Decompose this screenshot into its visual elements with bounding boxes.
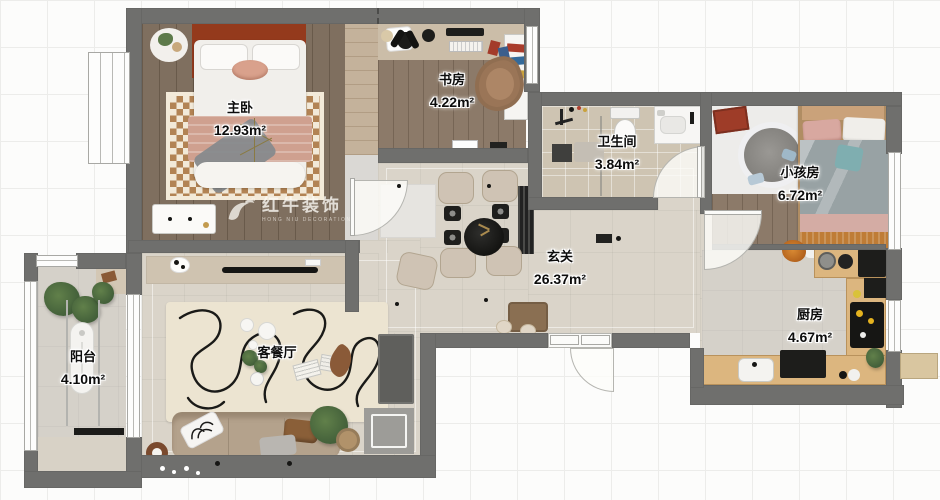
room-name: 书房 — [430, 70, 474, 91]
dining-stool — [444, 206, 461, 221]
entry-door-panel — [581, 335, 610, 345]
wall — [612, 333, 690, 348]
room-label-hallway: 玄关 26.37m² — [534, 247, 586, 290]
study-window — [526, 26, 538, 84]
balcony-window — [24, 281, 38, 451]
wall — [345, 240, 359, 312]
sink-faucet-icon — [752, 362, 757, 367]
brand-bull-icon — [226, 196, 256, 224]
entry-pouf — [496, 320, 512, 334]
master-dresser — [152, 204, 216, 234]
room-area: 3.84m² — [595, 153, 639, 175]
dining-chair — [440, 248, 476, 278]
shampoo-bottle — [583, 108, 587, 112]
wall — [528, 92, 902, 106]
room-area: 12.93m² — [214, 119, 266, 141]
floor-lamp-shade — [258, 322, 276, 340]
light-dot — [215, 461, 220, 466]
brand-tagline: HONG NIU DECORATION — [262, 218, 352, 224]
cow-print-decor — [170, 257, 190, 273]
entry-door-panel — [550, 335, 579, 345]
kitchen-cooktop — [850, 302, 884, 348]
floor-lamp — [240, 318, 254, 332]
room-label-kids-room: 小孩房 6.72m² — [778, 163, 822, 206]
kitchen-fridge — [858, 249, 886, 277]
light-dot — [397, 184, 401, 188]
brand-name: 红牛装饰 — [262, 197, 352, 216]
room-label-bathroom: 卫生间 3.84m² — [595, 132, 639, 175]
dining-table — [464, 218, 504, 256]
kids-pink-band — [800, 214, 888, 234]
book — [507, 43, 526, 52]
dining-stool — [492, 204, 509, 219]
console-table-glass — [371, 414, 407, 448]
hall-shoe-bench — [596, 234, 612, 243]
study-plate — [381, 30, 393, 42]
side-cabinet — [378, 334, 414, 404]
kitchen-bowl — [848, 369, 860, 381]
balcony-plant — [92, 282, 114, 304]
light-dot — [287, 461, 292, 466]
wall — [126, 455, 436, 478]
kids-room-window — [888, 152, 901, 250]
wall-deco-speck — [172, 470, 176, 474]
room-name: 阳台 — [61, 347, 105, 368]
room-name: 客餐厅 — [257, 343, 296, 364]
master-window — [88, 52, 130, 164]
sofa-seam — [228, 418, 229, 456]
room-name: 主卧 — [214, 98, 266, 119]
floor-plan: 主卧 12.93m² 书房 4.22m² 卫生间 3.84m² 小孩房 6.72… — [0, 0, 940, 500]
faucet-icon — [690, 112, 694, 124]
plant-basket — [336, 428, 360, 452]
master-basket — [172, 42, 182, 52]
bathroom-sink — [660, 116, 686, 134]
kids-teal-blanket — [834, 144, 864, 172]
wall — [76, 253, 126, 269]
wall — [126, 253, 142, 295]
toilet-tank — [610, 107, 640, 119]
master-wardrobe — [345, 24, 378, 155]
soap-dish — [657, 110, 665, 116]
kitchen-window — [888, 300, 901, 352]
room-name: 小孩房 — [778, 163, 822, 184]
wall — [690, 348, 704, 388]
kids-red-rug — [712, 106, 749, 134]
wall — [24, 471, 142, 488]
wall — [428, 333, 548, 348]
shower-drain-slab — [552, 144, 572, 162]
entry-door-swing — [570, 348, 614, 392]
study-lounge-cushion — [486, 68, 514, 100]
room-label-kitchen: 厨房 4.67m² — [788, 305, 832, 348]
kids-door-leaf — [704, 210, 762, 215]
kitchen-lemon — [853, 290, 861, 298]
kitchen-plant — [866, 348, 884, 368]
shampoo-bottle — [577, 106, 581, 110]
wall-deco-speck — [196, 471, 200, 475]
wall — [690, 385, 904, 405]
wall — [126, 8, 540, 24]
cow-spot — [174, 260, 179, 265]
exterior-shelf — [900, 353, 938, 379]
wall-deco-speck — [160, 466, 165, 471]
wall — [528, 92, 542, 210]
kitchen-pot — [818, 252, 836, 270]
shower-pipe-icon — [560, 109, 563, 125]
wall — [126, 437, 142, 472]
remote-control — [305, 259, 321, 266]
wall — [378, 148, 528, 163]
wall-deco-speck — [184, 466, 189, 471]
kitchen-appliance — [864, 278, 886, 298]
study-speaker — [422, 29, 435, 42]
wall — [128, 240, 360, 253]
room-area: 6.72m² — [778, 184, 822, 206]
dresser-gold-handle — [203, 222, 209, 228]
study-monitor — [446, 28, 484, 36]
room-area: 4.67m² — [788, 326, 832, 348]
cow-spot — [181, 265, 185, 269]
master-round-pillow — [232, 60, 268, 80]
kitchen-pan — [838, 254, 853, 269]
plant-pot — [250, 372, 264, 386]
room-label-study: 书房 4.22m² — [430, 70, 474, 113]
light-dot — [395, 302, 399, 306]
hall-decor-dot — [616, 236, 621, 241]
wall — [24, 449, 38, 473]
dining-chair — [438, 172, 474, 204]
master-bed-end-fluff — [195, 162, 305, 188]
dining-stool — [444, 230, 461, 245]
room-area: 26.37m² — [534, 268, 586, 290]
balcony-mat — [74, 428, 124, 435]
room-label-balcony: 阳台 4.10m² — [61, 347, 105, 390]
wall — [886, 106, 902, 154]
cooktop-burner — [868, 318, 874, 324]
balcony-sliding-door — [127, 294, 140, 438]
board-knob — [79, 330, 85, 336]
room-area: 4.22m² — [430, 91, 474, 113]
kitchen-dish-rack — [780, 350, 826, 378]
balcony-lower-strip — [38, 437, 126, 472]
cooktop-burner — [856, 310, 863, 317]
wall — [528, 197, 658, 210]
study-keyboard — [449, 41, 483, 52]
dresser-knob — [168, 217, 172, 221]
room-name: 厨房 — [788, 305, 832, 326]
room-name: 卫生间 — [595, 132, 639, 153]
dresser-knob — [188, 217, 192, 221]
wall — [886, 248, 902, 300]
room-label-living-dining: 客餐厅 — [257, 343, 296, 364]
room-name: 玄关 — [534, 247, 586, 268]
kitchen-jar — [839, 371, 847, 379]
light-dot — [487, 184, 491, 188]
room-area: 4.10m² — [61, 368, 105, 390]
light-dot — [484, 298, 488, 302]
watermark: 红牛装饰 HONG NIU DECORATION — [226, 196, 352, 224]
room-label-master-bedroom: 主卧 12.93m² — [214, 98, 266, 141]
cooktop-dial — [860, 332, 866, 338]
wall-joint-mark — [377, 8, 380, 24]
shower-head-icon — [569, 107, 574, 112]
watermark-text: 红牛装饰 HONG NIU DECORATION — [262, 197, 352, 223]
television — [222, 267, 318, 273]
balcony-top-window — [36, 255, 78, 267]
bathroom-door-leaf — [697, 146, 702, 198]
